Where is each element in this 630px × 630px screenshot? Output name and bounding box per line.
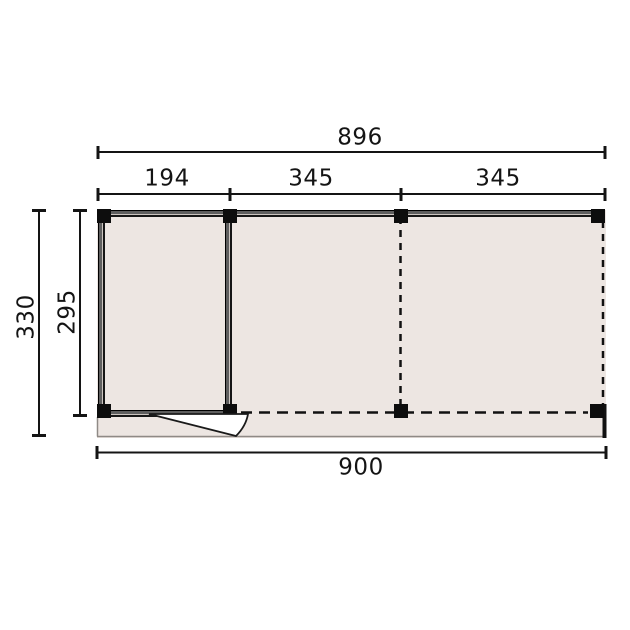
- post-top-right: [591, 209, 605, 223]
- floorplan-drawing: [0, 0, 630, 630]
- dim-label-segment-2: 345: [288, 168, 333, 191]
- post-bottom-left: [97, 404, 111, 418]
- wall-back: [98, 210, 605, 217]
- floorplan-canvas: 896 194 345 345 330 295 900: [0, 0, 630, 630]
- dim-label-side-inner: 295: [57, 289, 80, 334]
- wall-left: [98, 210, 105, 417]
- post-top-mid1: [223, 209, 237, 223]
- post-top-left: [97, 209, 111, 223]
- floor-fill: [97, 210, 606, 438]
- dim-label-segment-1: 194: [144, 168, 189, 191]
- post-bottom-right: [590, 404, 604, 418]
- dim-label-side-outer: 330: [16, 294, 39, 339]
- post-top-mid2: [394, 209, 408, 223]
- dim-label-top-total: 896: [337, 127, 382, 150]
- dim-label-bottom-total: 900: [338, 457, 383, 480]
- dim-label-segment-3: 345: [475, 168, 520, 191]
- wall-room-right: [225, 210, 232, 417]
- post-bottom-mid2: [394, 404, 408, 418]
